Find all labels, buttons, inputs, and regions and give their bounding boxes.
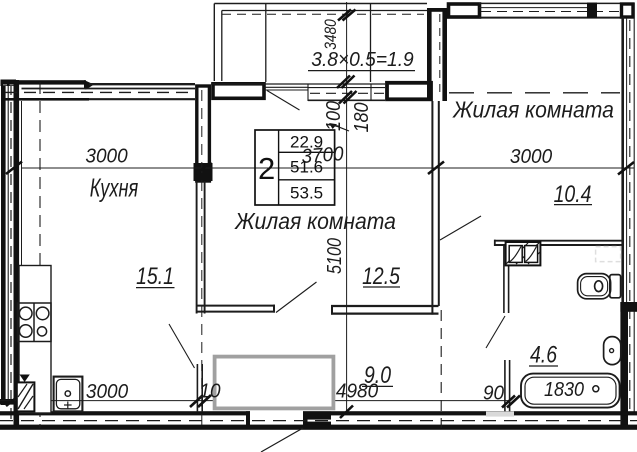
svg-text:53.5: 53.5 <box>290 184 323 203</box>
svg-text:10.4: 10.4 <box>554 180 592 207</box>
svg-text:Жилая комната: Жилая комната <box>452 97 614 123</box>
svg-text:22.9: 22.9 <box>290 133 323 152</box>
svg-text:51.6: 51.6 <box>290 158 323 177</box>
svg-text:3000: 3000 <box>86 381 128 404</box>
svg-text:2: 2 <box>258 151 275 186</box>
svg-text:5100: 5100 <box>323 238 345 274</box>
svg-text:4980: 4980 <box>336 380 378 403</box>
svg-text:10: 10 <box>199 380 220 403</box>
svg-text:3000: 3000 <box>510 146 552 169</box>
svg-text:15.1: 15.1 <box>136 262 174 289</box>
svg-text:100: 100 <box>323 101 345 131</box>
svg-text:90: 90 <box>483 382 504 405</box>
svg-text:Кухня: Кухня <box>90 173 138 202</box>
svg-text:3.8×0.5=1.9: 3.8×0.5=1.9 <box>311 49 414 71</box>
svg-text:3000: 3000 <box>85 145 127 168</box>
svg-text:3480: 3480 <box>322 19 341 50</box>
svg-text:180: 180 <box>351 102 373 132</box>
svg-text:4.6: 4.6 <box>530 341 558 368</box>
svg-text:Жилая комната: Жилая комната <box>234 208 396 234</box>
svg-text:1830: 1830 <box>544 379 584 401</box>
svg-text:12.5: 12.5 <box>362 262 401 289</box>
